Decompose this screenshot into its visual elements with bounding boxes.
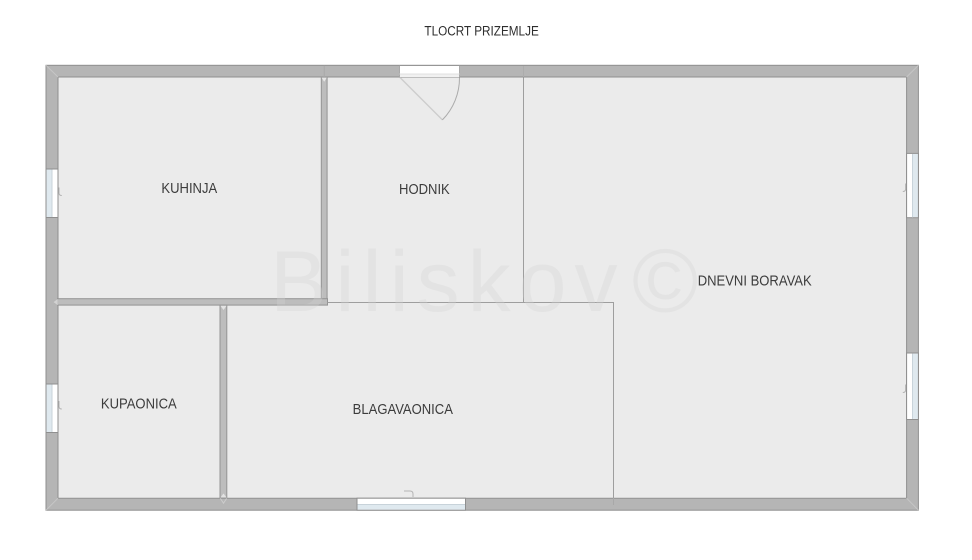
svg-text:BLAGAVAONICA: BLAGAVAONICA xyxy=(353,400,454,417)
svg-text:Biliskov: Biliskov xyxy=(270,234,626,330)
svg-text:HODNIK: HODNIK xyxy=(399,180,450,197)
svg-text:KUPAONICA: KUPAONICA xyxy=(101,394,177,411)
svg-text:KUHINJA: KUHINJA xyxy=(161,179,217,196)
svg-text:DNEVNI BORAVAK: DNEVNI BORAVAK xyxy=(698,272,813,289)
svg-text:TLOCRT PRIZEMLJE: TLOCRT PRIZEMLJE xyxy=(424,22,539,38)
svg-text:©: © xyxy=(632,232,698,332)
